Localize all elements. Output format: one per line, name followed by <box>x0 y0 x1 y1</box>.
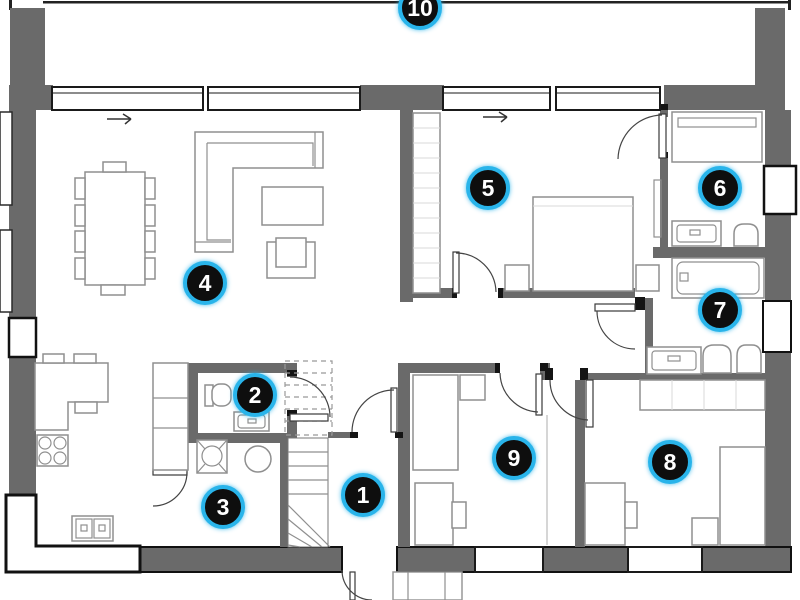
room-number: 9 <box>508 447 521 470</box>
room-marker-4[interactable]: 4 <box>183 261 227 305</box>
nightstand-9 <box>460 375 485 400</box>
door-bedroom-9 <box>500 373 542 415</box>
wardrobe-bedroom5 <box>413 113 440 293</box>
door-toilet-6 <box>618 114 666 159</box>
dining-table <box>85 172 145 285</box>
window-left-2 <box>0 230 12 312</box>
sink-toilet6 <box>672 221 721 246</box>
door-wc-vestibule <box>290 377 330 421</box>
tall-cabinet-column <box>153 363 188 470</box>
entrance-porch <box>393 572 462 600</box>
room-number: 5 <box>482 177 495 200</box>
room-number: 2 <box>249 384 262 407</box>
room-number: 7 <box>714 299 727 322</box>
staircase <box>288 438 330 547</box>
bidet-bathroom <box>737 345 761 373</box>
room-marker-7[interactable]: 7 <box>698 288 742 332</box>
bedroom5-furniture <box>413 113 661 293</box>
door-bedroom-5 <box>453 252 496 293</box>
room-marker-5[interactable]: 5 <box>466 166 510 210</box>
door-kitchen <box>153 469 187 506</box>
desk-8 <box>585 483 625 545</box>
nightstand <box>505 265 529 291</box>
room-marker-6[interactable]: 6 <box>698 166 742 210</box>
entrance-arrow-right <box>483 112 507 122</box>
radiator <box>654 180 661 237</box>
room-number: 1 <box>357 484 370 507</box>
window-top-1 <box>52 87 203 110</box>
window-left-3 <box>9 318 36 357</box>
window-right-1 <box>764 166 796 214</box>
floor-plan-drawing <box>0 0 800 600</box>
kitchen-stool <box>245 446 271 472</box>
armchair <box>267 238 315 278</box>
room-marker-1[interactable]: 1 <box>341 473 385 517</box>
room-marker-9[interactable]: 9 <box>492 436 536 480</box>
kitchen-island-sink <box>197 440 227 473</box>
coffee-table <box>262 187 323 225</box>
chair-9 <box>452 502 466 528</box>
door-entrance <box>342 570 372 600</box>
closet-toilet6 <box>672 112 762 162</box>
entrance-arrow-left <box>107 114 131 124</box>
window-left-1 <box>0 112 12 205</box>
door-bath-corridor <box>595 304 635 349</box>
room-number: 4 <box>199 272 212 295</box>
window-right-2 <box>763 301 791 352</box>
bed-9 <box>413 375 458 470</box>
desk-9 <box>415 483 453 545</box>
kitchen-counter <box>35 363 108 430</box>
window-top-4 <box>556 87 660 110</box>
dishwasher <box>75 402 97 413</box>
room-number: 10 <box>407 0 433 20</box>
room-marker-3[interactable]: 3 <box>201 485 245 529</box>
window-top-2 <box>208 87 360 110</box>
floor-plan: 1 2 3 4 5 6 7 8 9 10 <box>0 0 800 600</box>
toilet-6 <box>734 224 758 246</box>
chair-8 <box>625 502 637 528</box>
washer-unit <box>72 516 113 541</box>
stove <box>37 435 68 466</box>
nightstand-8 <box>692 518 718 545</box>
room-number: 3 <box>217 496 230 519</box>
bed-8 <box>720 447 765 545</box>
window-bottom-1 <box>475 547 543 572</box>
sink-bathroom <box>647 347 701 374</box>
bed-master <box>533 197 633 291</box>
nightstand <box>636 265 659 291</box>
closet-8 <box>640 380 765 410</box>
room-number: 8 <box>664 451 677 474</box>
door-bedroom-8 <box>550 380 593 427</box>
toilet-wc <box>205 384 231 406</box>
door-hall <box>352 388 397 432</box>
dining-set <box>75 162 155 295</box>
window-top-3 <box>443 87 550 110</box>
room-marker-8[interactable]: 8 <box>648 440 692 484</box>
room-marker-2[interactable]: 2 <box>233 373 277 417</box>
toilet-bathroom <box>703 345 731 373</box>
window-bottom-2 <box>628 547 702 572</box>
room-number: 6 <box>714 177 727 200</box>
